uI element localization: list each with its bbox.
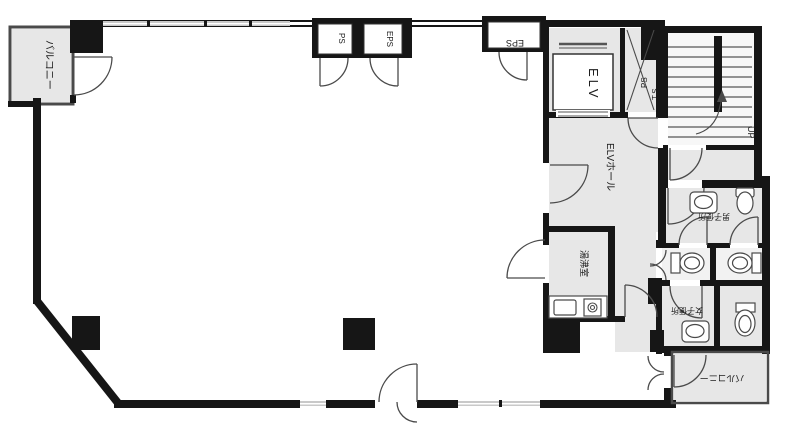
door-eps-room — [499, 52, 527, 80]
label-kitchenette: 湯沸室 — [579, 250, 590, 277]
pillar-main-room — [343, 318, 375, 350]
pillar-kitchenette-corner — [543, 320, 580, 353]
door-ps-closet — [320, 58, 348, 86]
label-shaft-ps: PS — [640, 77, 649, 88]
door-main-entrance — [379, 364, 417, 422]
kitchenette-sink — [554, 300, 576, 315]
label-elevator: ELV — [586, 68, 601, 101]
windows — [103, 20, 540, 407]
kitchenette-stove — [584, 299, 601, 316]
pillar-top-right — [641, 20, 665, 60]
toilet-right-tank — [752, 253, 761, 273]
label-ps-closet: PS — [337, 33, 346, 44]
toilet-left-tank — [671, 253, 680, 273]
label-shaft-ts: T.S — [651, 88, 660, 100]
toilet-left-seat — [685, 257, 700, 269]
label-eps-room: EPS — [506, 38, 524, 48]
toilet-right-seat — [733, 257, 748, 269]
label-womens-toilet: 女子便所 — [671, 306, 703, 316]
balcony-top-left-room — [12, 29, 71, 102]
stair-corridor — [666, 150, 754, 180]
urinal — [737, 192, 753, 214]
label-stairs-up: UP — [746, 126, 756, 139]
mens-sink-bowl — [695, 196, 713, 209]
label-mens-toilet: 男子便所 — [698, 212, 730, 222]
pillar-diagonal — [72, 316, 100, 350]
pillar-toilet-left — [648, 278, 660, 304]
womens-toilet-seat — [739, 316, 751, 333]
elevator-cab — [553, 54, 613, 110]
floor-plan: バルコニー PS EPS EPS ELV PS T.S UP ELVホール 湯沸… — [0, 0, 787, 429]
stair-room — [668, 31, 754, 145]
door-kitchenette — [507, 240, 545, 278]
door-eps-closet — [370, 58, 398, 86]
pillar-top-left — [70, 20, 103, 53]
label-elv-hall: ELVホール — [604, 143, 616, 191]
label-balcony-bottom-right: バルコニー — [700, 373, 745, 383]
womens-sink-bowl — [686, 325, 704, 338]
elv-hall-room — [549, 118, 658, 232]
pillar-toilet-bottom — [650, 330, 664, 352]
label-eps-closet: EPS — [385, 31, 394, 47]
label-balcony-top-left: バルコニー — [43, 40, 55, 90]
floor-plan-svg: バルコニー PS EPS EPS ELV PS T.S UP ELVホール 湯沸… — [0, 0, 787, 429]
door-balcony-top-left — [74, 57, 112, 95]
